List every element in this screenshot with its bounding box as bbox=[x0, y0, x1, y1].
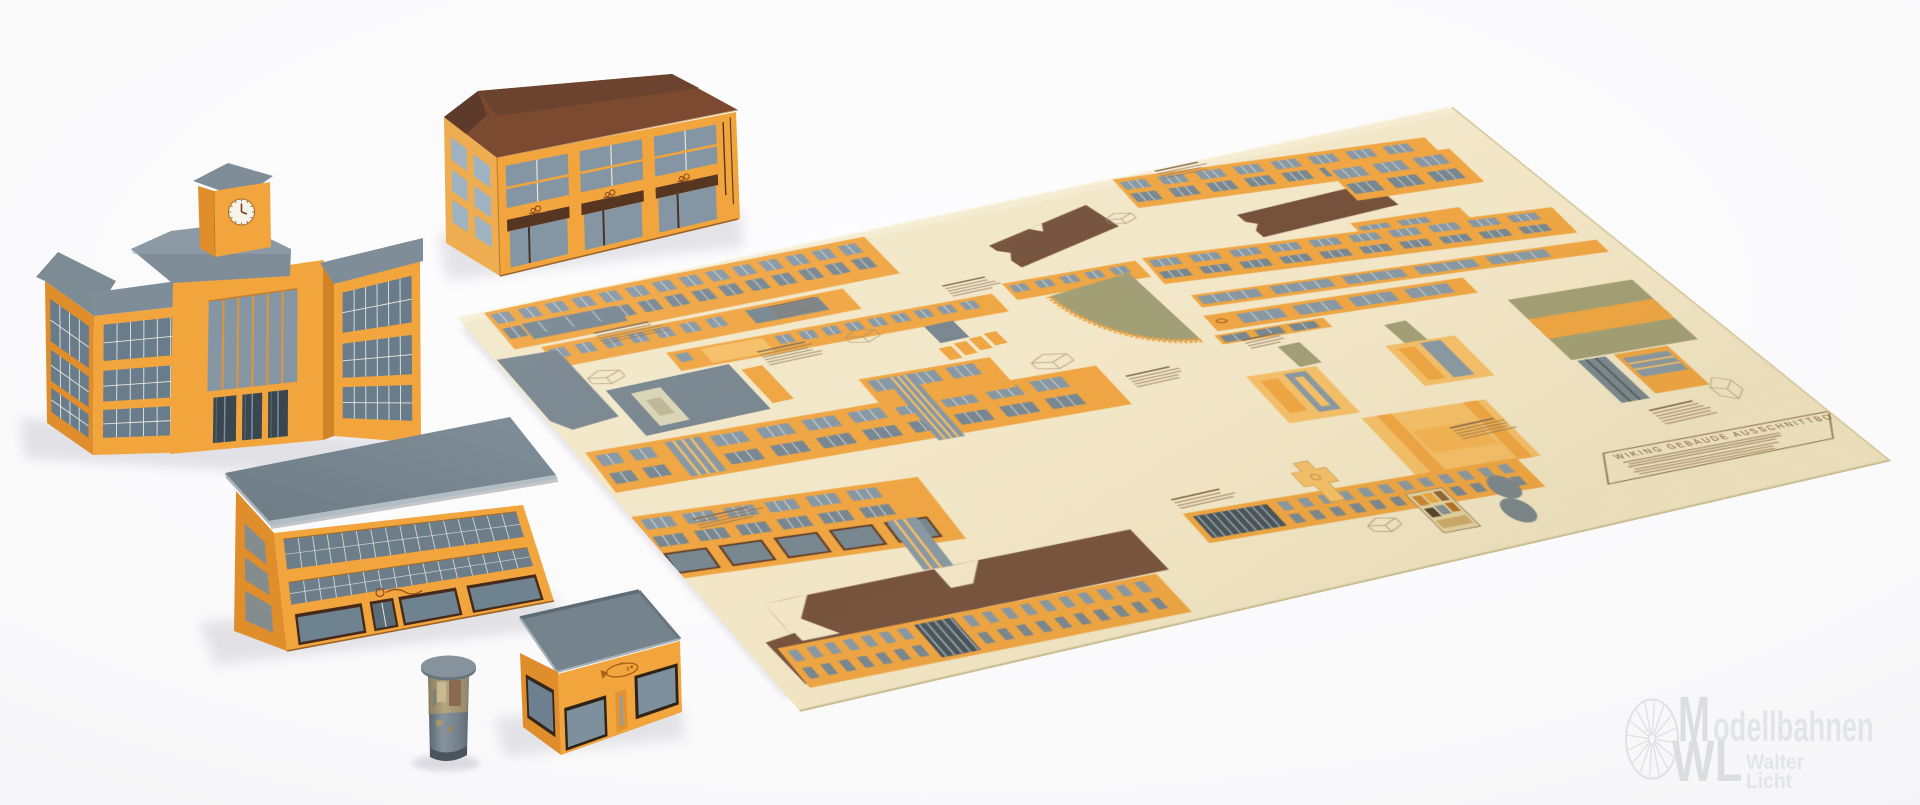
svg-text:Licht: Licht bbox=[1746, 770, 1792, 793]
svg-text:WL: WL bbox=[1672, 730, 1742, 795]
